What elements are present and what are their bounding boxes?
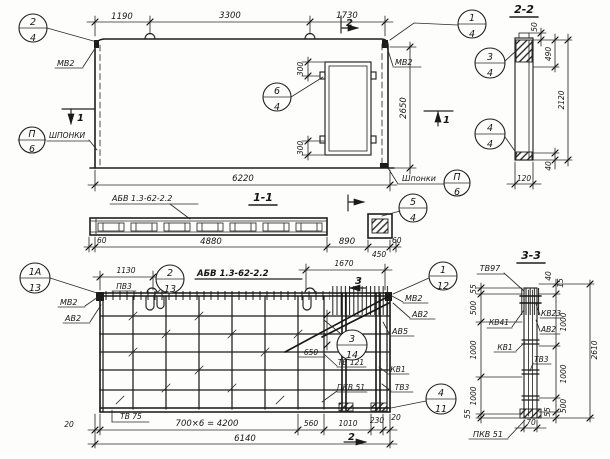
callout-den: 4 [410, 213, 416, 224]
label-kv1-33: КВ1 [494, 342, 525, 352]
callout-den: 11 [435, 404, 447, 415]
svg-text:АВ2: АВ2 [540, 325, 556, 334]
callout-den: 6 [454, 187, 460, 198]
svg-text:КВ1: КВ1 [497, 343, 512, 352]
svg-text:ТВ3: ТВ3 [534, 355, 549, 364]
callout-den: 4 [274, 102, 280, 113]
callout-shponki-left: П 6 ШПОНКИ [18, 127, 97, 155]
dim-20-right: 20 [391, 413, 401, 422]
dim-1670: 1670 [334, 259, 353, 268]
label-av2-plan-right: АВ2 [393, 303, 435, 319]
dim-60-left: 60 [97, 236, 107, 245]
section-marker-2-label: 2 [346, 18, 353, 29]
dim-300-bottom: 300 [296, 141, 305, 156]
dim-right-55: 55 [543, 407, 552, 417]
callout-6-4: 6 4 [263, 77, 323, 113]
callout-den: 4 [30, 33, 36, 44]
label-tv97: ТВ97 [477, 264, 524, 291]
base-block [520, 409, 541, 418]
callout-num: П [28, 129, 35, 140]
section-marker-3-label: 3 [355, 276, 362, 287]
dim-2120: 2120 [557, 90, 566, 109]
dim-560: 560 [304, 419, 319, 428]
top-embed-block [516, 40, 532, 62]
svg-text:ТВ 75: ТВ 75 [120, 412, 142, 421]
label-mv2-plan-right: МВ2 [392, 294, 428, 303]
dim-right-1000b: 1000 [559, 364, 568, 383]
callout-den: 4 [487, 68, 493, 79]
callout-num: 5 [410, 197, 416, 208]
drawing-canvas: 1190 3300 1730 2 1 1 2650 [0, 0, 610, 459]
callout-num: 1 [469, 13, 475, 24]
dim-1190: 1190 [111, 12, 133, 22]
slab-mark-label: АБВ 1.3-62-2.2 [111, 194, 172, 203]
section-3-3-title: 3-3 [521, 249, 541, 262]
dim-left-55a: 55 [469, 284, 478, 294]
callout-num: 6 [274, 86, 280, 97]
dim-left-1000b: 1000 [469, 386, 478, 405]
dim-70: 70 [526, 418, 536, 427]
section-marker-1-right-label: 1 [443, 115, 450, 126]
dim-50: 50 [530, 22, 539, 32]
dim-left-1000a: 1000 [469, 340, 478, 359]
label-tv3-33: ТВ3 [530, 355, 551, 371]
section-1-1-dims: 60 4880 890 450 60 [84, 236, 402, 259]
bottom-embed-block [516, 152, 532, 160]
svg-text:АВ2: АВ2 [64, 314, 81, 323]
dim-300-top: 300 [296, 62, 305, 77]
callout-den: 13 [164, 284, 176, 295]
section-marker-1-right: 1 [424, 111, 453, 126]
column-3-3 [519, 288, 542, 418]
callout-1-12: 1 12 [393, 262, 457, 294]
dim-60-right: 60 [392, 236, 402, 245]
section-3-3-view: 3-3 ТВ97 [463, 249, 599, 439]
section-marker-1-left: 1 [62, 109, 95, 124]
dim-230: 230 [370, 416, 385, 425]
section-1-1-title: 1-1 [253, 191, 273, 204]
label-kv41: КВ41 [487, 310, 524, 328]
callout-den: 4 [487, 139, 493, 150]
blueprint-page: 1190 3300 1730 2 1 1 2650 [0, 0, 610, 459]
cut-marker [348, 195, 364, 211]
dim-right-40: 40 [544, 271, 553, 281]
label-shponki-right: Шпонки [402, 174, 436, 183]
callout-den: 4 [469, 29, 475, 40]
callout-4-4: 4 4 [475, 119, 517, 154]
dim-6140: 6140 [234, 434, 256, 444]
section-marker-2-bottom-label: 2 [348, 432, 355, 443]
dim-6220: 6220 [232, 174, 254, 184]
svg-text:АВ2: АВ2 [411, 310, 428, 319]
callout-num: 2 [167, 268, 173, 279]
callout-num: 2 [30, 17, 36, 28]
section-2-2-view: 2-2 50 490 40 2120 [475, 3, 572, 189]
callout-den: 14 [346, 350, 358, 361]
svg-text:ПКВ 51: ПКВ 51 [337, 383, 365, 392]
section-1-1-view: АБВ 1.3-62-2.2 1-1 [84, 191, 427, 259]
label-pv3: ПВ3 [116, 282, 132, 291]
section-marker-2-bottom: 2 [344, 432, 366, 443]
callout-1a-13: 1А 13 [20, 263, 97, 294]
dim-20-left: 20 [64, 420, 74, 429]
callout-num: 3 [349, 334, 355, 345]
svg-text:КВ1: КВ1 [390, 365, 405, 374]
svg-text:ТВ3: ТВ3 [395, 383, 410, 392]
hollow-cores [98, 223, 322, 231]
callout-2-4: 2 4 [19, 14, 97, 44]
svg-text:МВ2: МВ2 [405, 294, 422, 303]
dim-120: 120 [517, 174, 532, 183]
callout-1-4: 1 4 [390, 10, 486, 40]
svg-text:ТВ97: ТВ97 [480, 264, 501, 273]
overall-dim: 6220 [88, 170, 397, 191]
dim-890: 890 [339, 237, 355, 247]
label-av2-plan-left: АВ2 [63, 305, 101, 323]
dim-450: 450 [372, 250, 387, 259]
door-opening [320, 62, 376, 155]
dim-2610: 2610 [590, 340, 599, 359]
svg-text:ПКВ 51: ПКВ 51 [473, 430, 503, 439]
label-pkv51-plan: ПКВ 51 [322, 383, 367, 402]
svg-text:МВ2: МВ2 [57, 59, 74, 68]
callout-num: 4 [438, 388, 444, 399]
dim-spacing: 700×6 = 4200 [176, 419, 239, 429]
reinforcement-plan-view: АБВ 1.3-62-2.2 1130 ПВ3 1670 3 МВ2 [20, 259, 457, 448]
dim-right-15: 15 [556, 278, 565, 288]
dim-2650: 2650 [399, 97, 409, 119]
section-2-2-title: 2-2 [514, 3, 534, 16]
label-mv2-plan-left: МВ2 [58, 297, 98, 307]
svg-text:КВ23: КВ23 [541, 309, 561, 318]
dim-4880: 4880 [200, 237, 222, 247]
dim-1010: 1010 [338, 419, 357, 428]
embed-plate [380, 163, 388, 168]
dim-70-group: 70 [515, 418, 546, 432]
dim-3300: 3300 [219, 11, 241, 21]
callout-num: 3 [487, 52, 493, 63]
label-pkv51-33: ПКВ 51 [469, 420, 525, 439]
dim-left-500: 500 [469, 301, 478, 316]
callout-5-4: 5 4 [382, 194, 427, 224]
callout-den: 12 [437, 281, 449, 292]
label-shponki-left: ШПОНКИ [49, 131, 86, 140]
section-3-3-right-dims: 15 40 1000 1000 500 55 2610 [539, 271, 599, 423]
callout-den: 13 [29, 283, 41, 294]
callout-shponki-right: Шпонки П 6 [388, 168, 470, 198]
plan-title: АБВ 1.3-62-2.2 [196, 269, 269, 279]
callout-num: 1 [440, 265, 446, 276]
callout-num: 1А [29, 267, 42, 278]
label-mv2-left: МВ2 [55, 47, 96, 68]
svg-text:МВ2: МВ2 [60, 298, 77, 307]
slab-section [90, 214, 392, 238]
dim-1670-group: 1670 [299, 259, 392, 290]
section-3-3-left-dims: 55 500 1000 1000 55 [463, 283, 522, 423]
svg-text:МВ2: МВ2 [395, 58, 412, 67]
section-marker-1-left-label: 1 [77, 113, 84, 124]
dim-1130: 1130 [116, 266, 135, 275]
panel-outline [95, 39, 388, 168]
label-mv2-right: МВ2 [386, 44, 421, 67]
svg-text:КВ41: КВ41 [489, 318, 509, 327]
callout-num: 4 [487, 123, 493, 134]
elevation-view: 1190 3300 1730 2 1 1 2650 [18, 10, 486, 198]
svg-text:АВ5: АВ5 [391, 327, 408, 336]
dim-40: 40 [544, 161, 553, 171]
callout-den: 6 [29, 144, 35, 155]
dim-490: 490 [544, 47, 553, 62]
callout-num: П [453, 172, 460, 183]
callout-3-4: 3 4 [475, 48, 517, 79]
dim-right-500: 500 [559, 399, 568, 414]
dim-650: 650 [304, 348, 319, 357]
dim-left-55b: 55 [463, 409, 472, 419]
